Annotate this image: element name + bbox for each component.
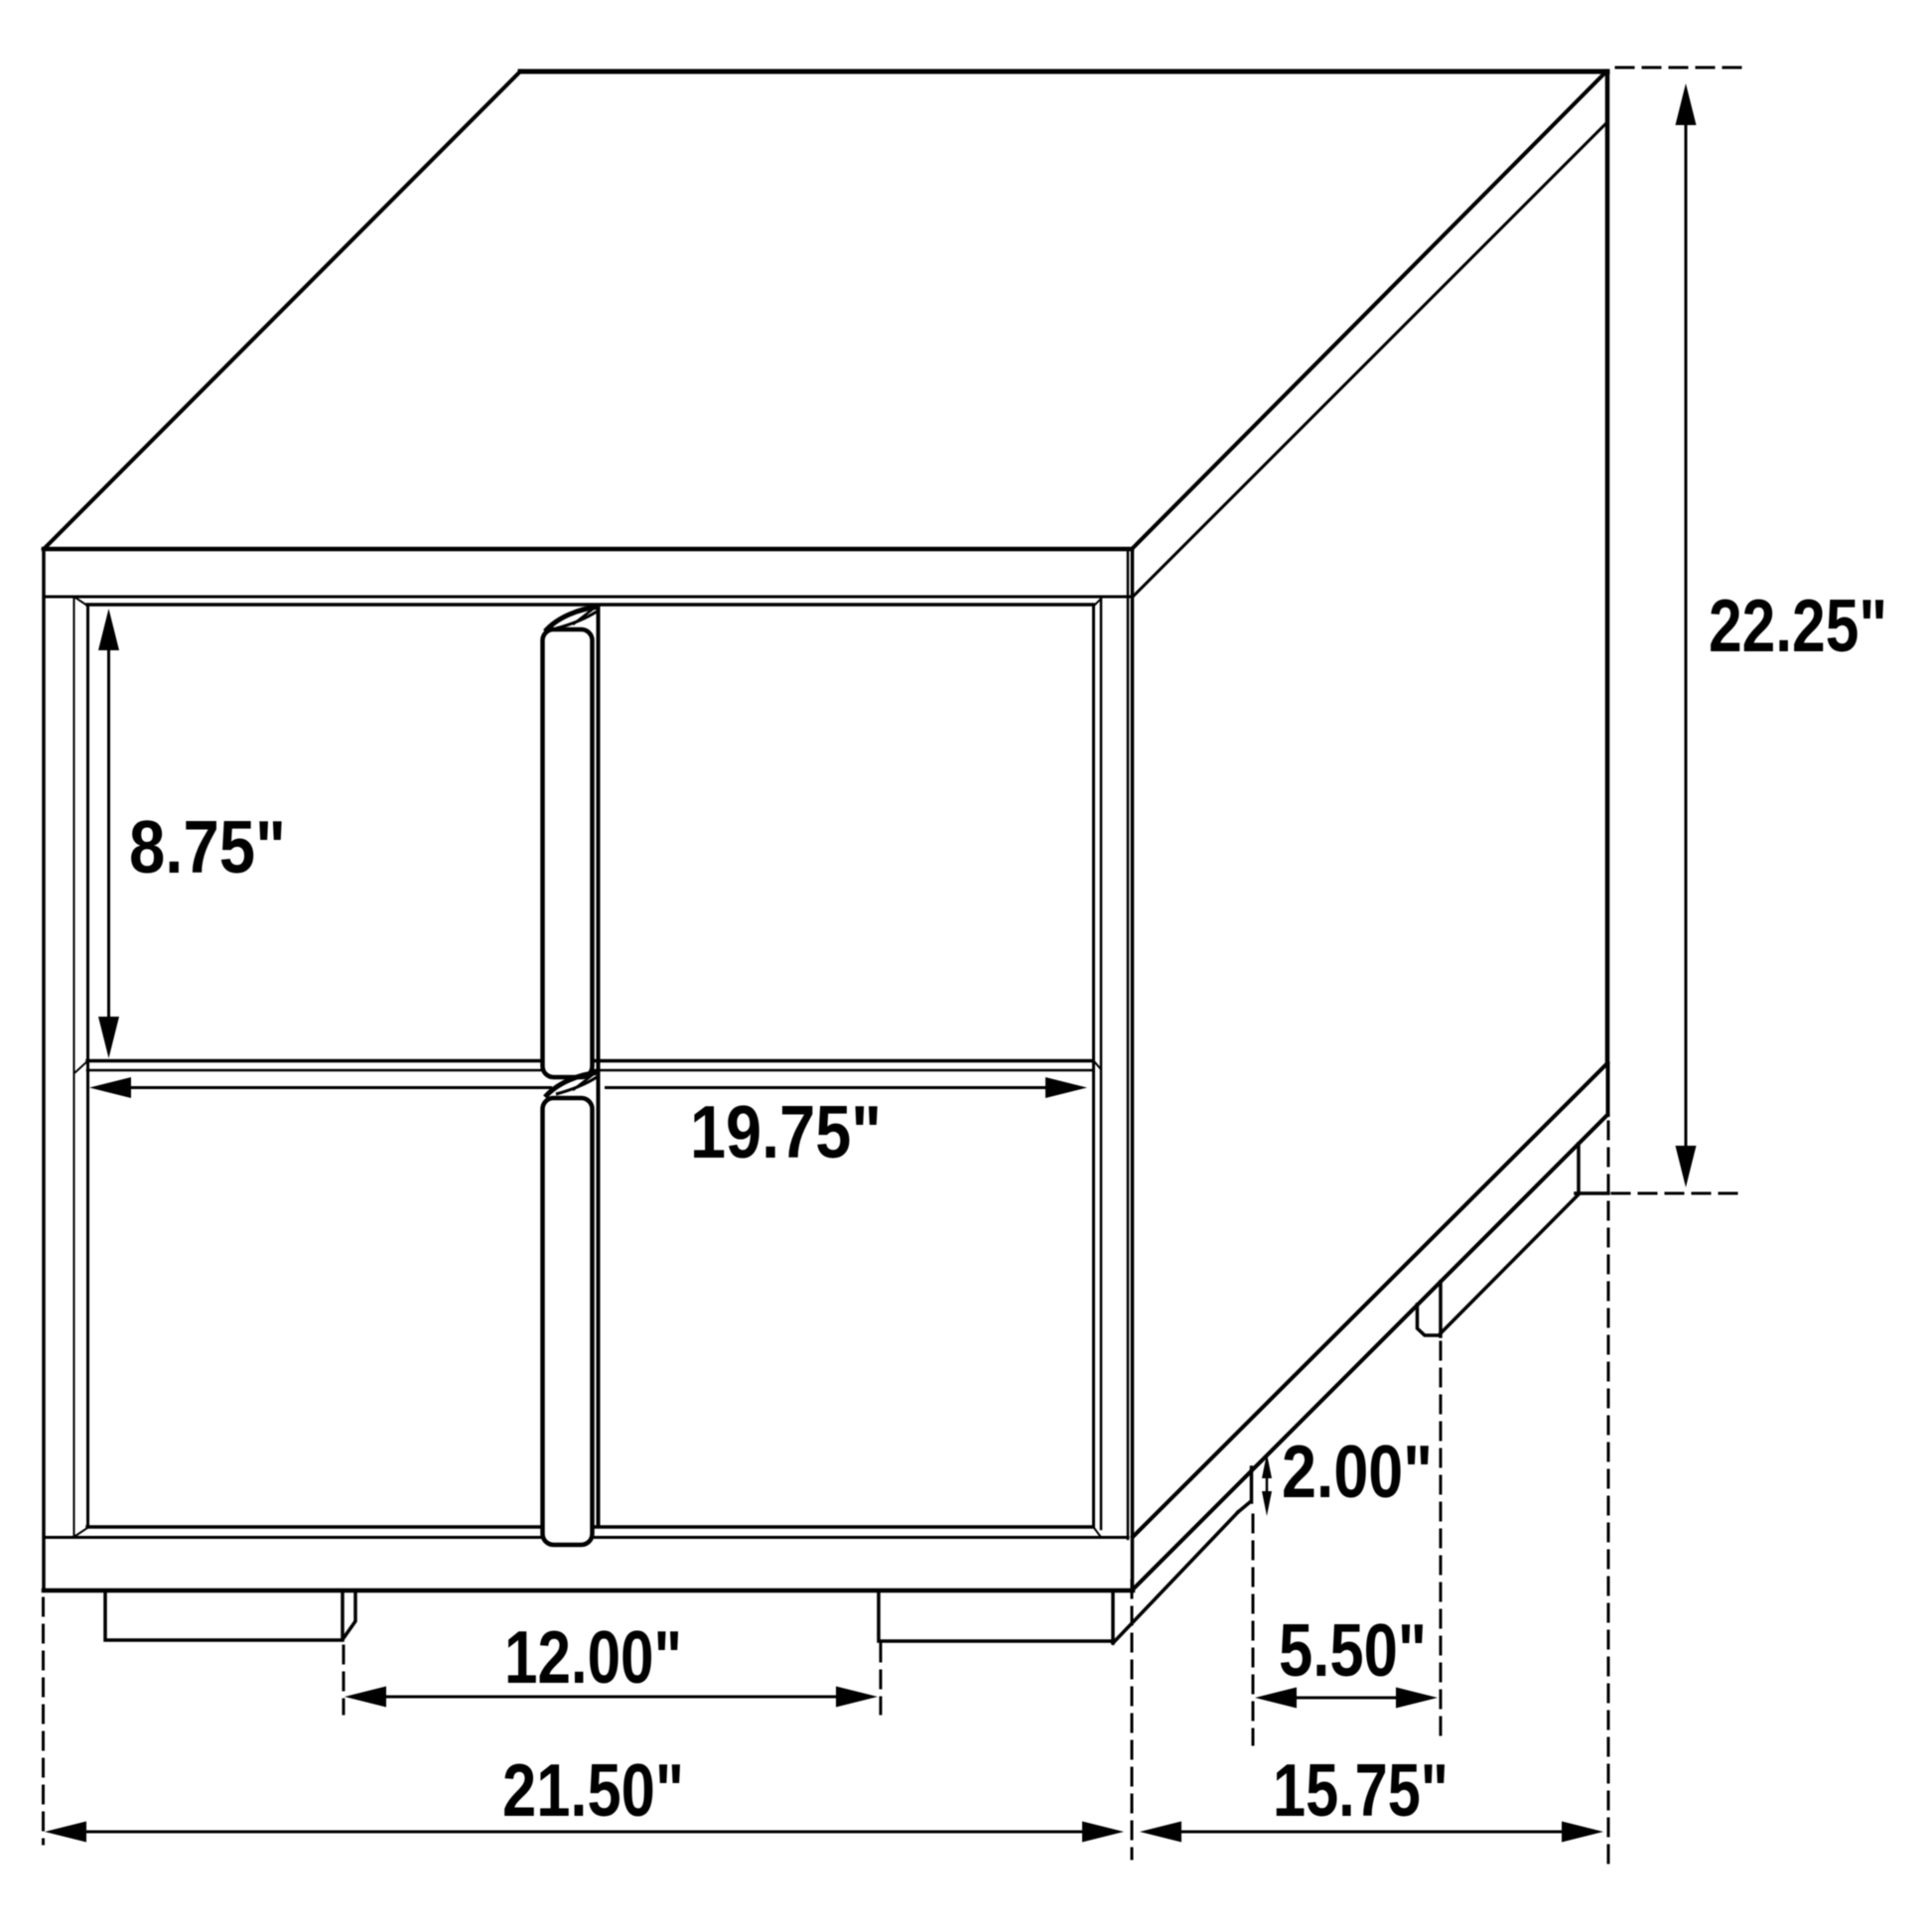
svg-text:22.25": 22.25": [1709, 584, 1887, 667]
svg-text:12.00": 12.00": [504, 1615, 682, 1699]
svg-text:15.75": 15.75": [1273, 1748, 1449, 1832]
svg-text:8.75": 8.75": [129, 805, 286, 889]
svg-text:19.75": 19.75": [690, 1090, 882, 1173]
svg-text:5.50": 5.50": [1279, 1608, 1427, 1692]
svg-text:21.50": 21.50": [502, 1748, 684, 1832]
svg-text:2.00": 2.00": [1282, 1430, 1433, 1513]
